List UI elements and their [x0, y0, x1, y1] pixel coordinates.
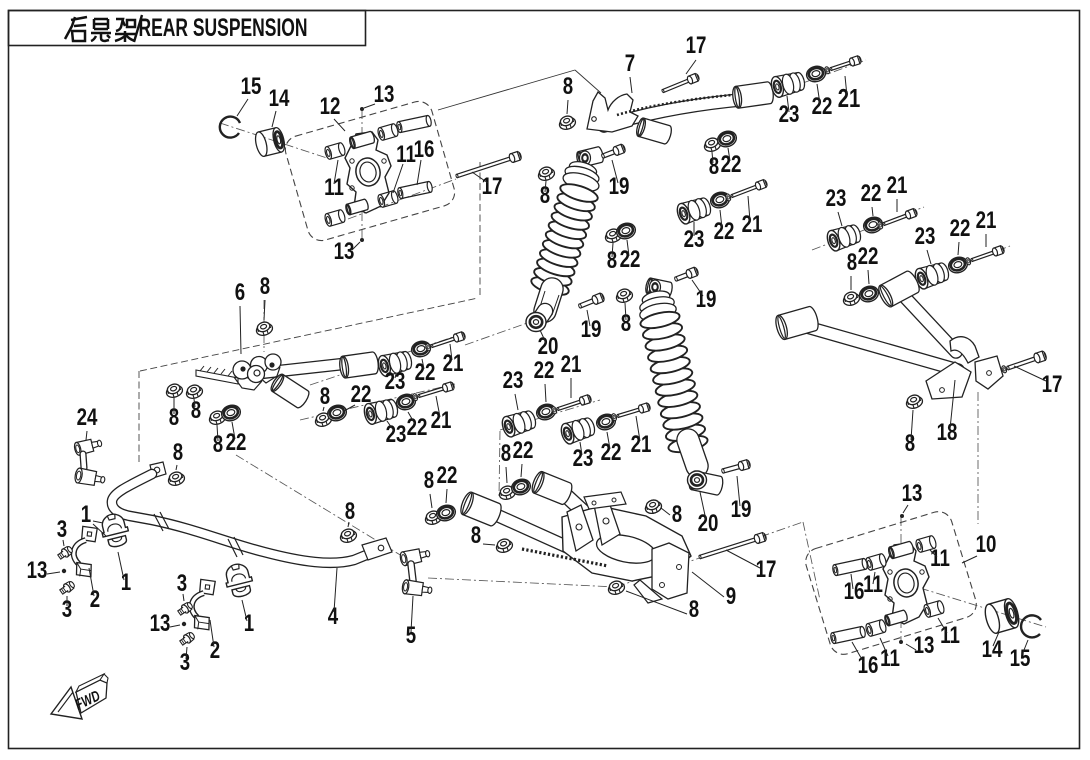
- svg-text:8: 8: [424, 467, 434, 494]
- svg-text:24: 24: [77, 404, 98, 431]
- svg-text:21: 21: [976, 207, 997, 234]
- svg-text:6: 6: [235, 279, 245, 306]
- svg-text:13: 13: [914, 632, 935, 659]
- svg-text:11: 11: [930, 545, 950, 572]
- svg-text:23: 23: [385, 368, 406, 395]
- svg-text:23: 23: [386, 421, 407, 448]
- svg-text:23: 23: [573, 445, 594, 472]
- svg-text:13: 13: [334, 238, 355, 265]
- svg-text:21: 21: [561, 351, 582, 378]
- svg-text:12: 12: [320, 93, 341, 120]
- svg-text:13: 13: [150, 610, 171, 637]
- svg-text:14: 14: [982, 636, 1003, 663]
- svg-text:19: 19: [609, 173, 630, 200]
- svg-text:22: 22: [950, 215, 971, 242]
- svg-text:11: 11: [863, 571, 883, 598]
- svg-text:19: 19: [731, 496, 752, 523]
- svg-text:22: 22: [534, 357, 555, 384]
- svg-text:23: 23: [915, 223, 936, 250]
- svg-text:13: 13: [902, 480, 923, 507]
- svg-text:20: 20: [538, 333, 559, 360]
- svg-text:17: 17: [756, 556, 777, 583]
- svg-text:15: 15: [241, 73, 262, 100]
- svg-text:8: 8: [501, 440, 511, 467]
- svg-text:3: 3: [180, 649, 190, 676]
- svg-text:21: 21: [431, 407, 452, 434]
- svg-text:8: 8: [345, 498, 355, 525]
- svg-text:22: 22: [601, 439, 622, 466]
- svg-text:23: 23: [826, 185, 847, 212]
- svg-text:21: 21: [838, 84, 861, 113]
- svg-text:17: 17: [686, 32, 707, 59]
- svg-text:4: 4: [328, 603, 338, 630]
- svg-text:22: 22: [513, 437, 534, 464]
- svg-text:10: 10: [976, 531, 997, 558]
- svg-text:22: 22: [407, 414, 428, 441]
- svg-text:2: 2: [210, 637, 220, 664]
- svg-text:22: 22: [861, 180, 882, 207]
- svg-text:22: 22: [714, 218, 735, 245]
- svg-text:11: 11: [324, 174, 344, 201]
- svg-text:1: 1: [81, 501, 91, 528]
- svg-text:23: 23: [503, 367, 524, 394]
- svg-text:8: 8: [563, 73, 573, 100]
- svg-text:13: 13: [374, 81, 395, 108]
- svg-text:22: 22: [721, 151, 742, 178]
- svg-text:11: 11: [880, 645, 900, 672]
- svg-text:22: 22: [858, 243, 879, 270]
- svg-text:7: 7: [625, 50, 635, 77]
- svg-text:22: 22: [437, 462, 458, 489]
- svg-text:21: 21: [443, 350, 464, 377]
- svg-text:23: 23: [779, 101, 800, 128]
- svg-text:21: 21: [887, 172, 908, 199]
- svg-text:8: 8: [672, 501, 682, 528]
- svg-text:8: 8: [709, 153, 719, 180]
- svg-text:8: 8: [905, 430, 915, 457]
- svg-text:14: 14: [269, 85, 290, 112]
- svg-text:13: 13: [27, 557, 48, 584]
- svg-text:9: 9: [726, 583, 736, 610]
- svg-text:16: 16: [414, 136, 435, 163]
- svg-text:21: 21: [631, 431, 652, 458]
- svg-text:18: 18: [937, 419, 958, 446]
- svg-text:19: 19: [581, 316, 602, 343]
- svg-text:8: 8: [173, 439, 183, 466]
- svg-text:17: 17: [482, 173, 503, 200]
- svg-text:17: 17: [1042, 371, 1063, 398]
- svg-text:8: 8: [320, 383, 330, 410]
- svg-text:21: 21: [742, 211, 763, 238]
- svg-text:3: 3: [57, 516, 67, 543]
- svg-text:8: 8: [260, 273, 270, 300]
- svg-text:16: 16: [844, 578, 865, 605]
- svg-text:16: 16: [858, 652, 879, 679]
- svg-text:8: 8: [471, 522, 481, 549]
- svg-text:22: 22: [226, 429, 247, 456]
- svg-text:22: 22: [812, 93, 833, 120]
- svg-text:3: 3: [177, 570, 187, 597]
- svg-text:8: 8: [540, 182, 550, 209]
- svg-text:22: 22: [620, 246, 641, 273]
- svg-text:8: 8: [191, 397, 201, 424]
- svg-text:20: 20: [698, 510, 719, 537]
- svg-text:8: 8: [689, 596, 699, 623]
- svg-text:REAR SUSPENSION: REAR SUSPENSION: [138, 13, 307, 42]
- svg-text:8: 8: [847, 249, 857, 276]
- svg-text:22: 22: [415, 359, 436, 386]
- svg-text:15: 15: [1010, 645, 1031, 672]
- svg-text:2: 2: [90, 586, 100, 613]
